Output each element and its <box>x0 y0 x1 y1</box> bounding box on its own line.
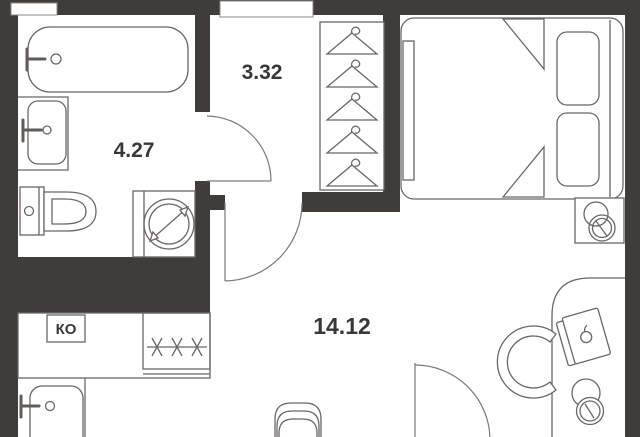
living-room-area-label: 14.12 <box>313 313 371 339</box>
washing-machine-icon <box>133 191 195 257</box>
floor-plan: 4.27 3.32 <box>0 0 640 437</box>
top-left-shaft <box>11 3 57 15</box>
wardrobe-icon <box>320 22 384 190</box>
toilet-icon <box>20 187 96 235</box>
top-center-shaft <box>220 1 313 17</box>
bed-icon <box>401 18 623 199</box>
pillow-icon <box>557 113 599 186</box>
floor-plan-svg: 4.27 3.32 <box>0 0 640 437</box>
bathroom-area-label: 4.27 <box>114 139 155 162</box>
pillow-icon <box>557 32 599 105</box>
kitchen-unit-label: КО <box>56 321 77 338</box>
hallway-area-label: 3.32 <box>242 61 283 84</box>
nightstand-icon <box>575 198 624 243</box>
chair-icon <box>275 403 321 437</box>
bathtub-icon <box>27 27 188 92</box>
